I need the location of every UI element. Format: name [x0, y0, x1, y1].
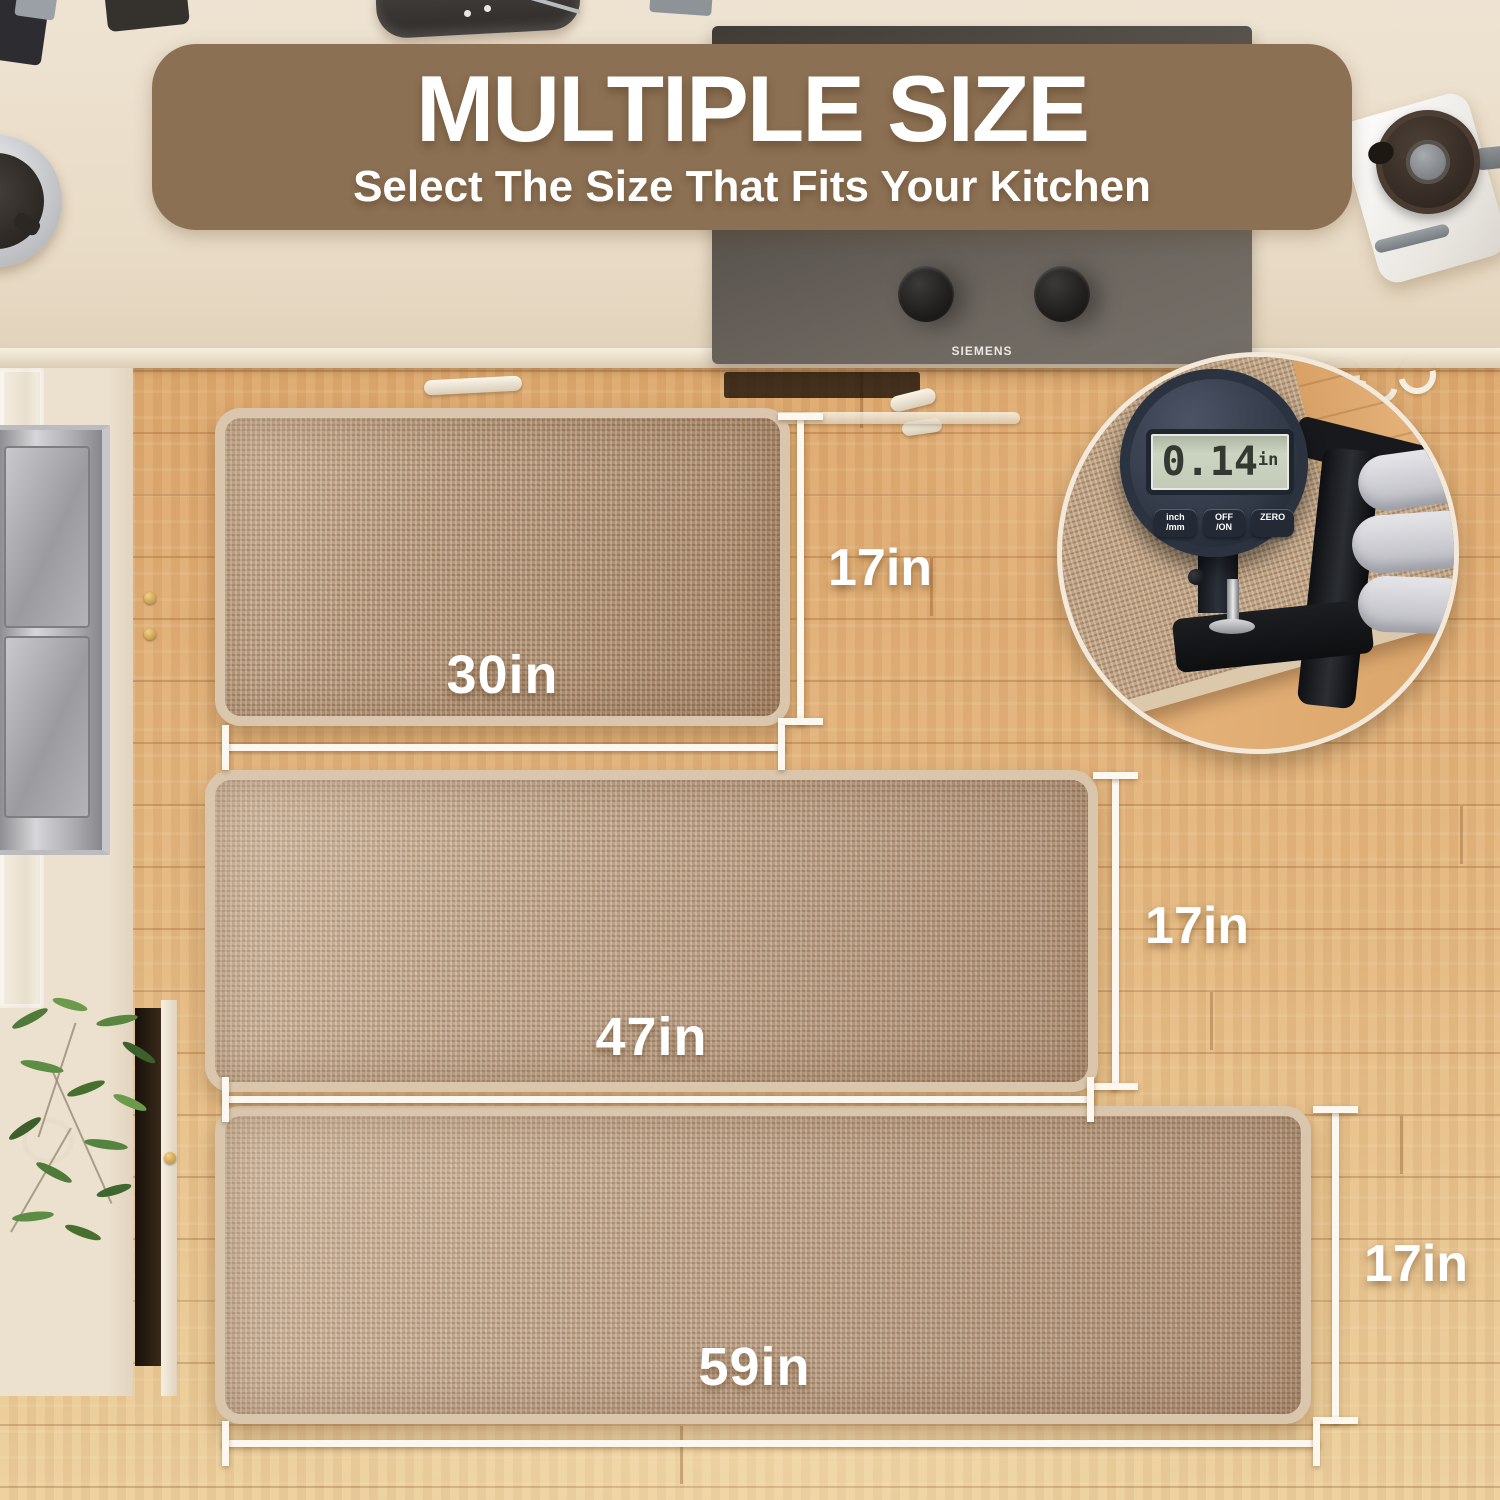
pan-rivet: [484, 5, 491, 12]
cabinet-knob: [144, 628, 156, 640]
gauge-button-zero: ZERO: [1251, 509, 1294, 537]
dimension-line-height-mat2: [1112, 772, 1119, 1090]
cabinet-knob: [164, 1152, 176, 1164]
steel-appliance-door: [4, 636, 90, 818]
height-label-mat3: 17in: [1364, 1234, 1468, 1294]
gauge-button-inch-mm: inch /mm: [1154, 509, 1197, 537]
gloved-finger: [1357, 575, 1459, 635]
mat-59x17: 59in: [215, 1106, 1311, 1424]
dimension-line-width-mat1: [222, 744, 785, 751]
gauge-button-line: /ON: [1205, 523, 1244, 533]
floor-plank-seam: [1400, 1116, 1403, 1174]
toe-kick-opening: [724, 372, 920, 398]
gauge-anvil: [1209, 619, 1255, 634]
steel-appliance-door: [4, 446, 90, 628]
height-label-mat2: 17in: [1145, 896, 1249, 956]
gauge-buttons: inch /mm OFF /ON ZERO: [1154, 509, 1294, 537]
banner-title: MULTIPLE SIZE: [416, 62, 1088, 156]
cooktop-knob: [1034, 266, 1090, 322]
cabinet-knob: [144, 592, 156, 604]
cooktop-knob: [898, 266, 954, 322]
mat-30x17: 30in: [215, 408, 790, 726]
gauge-button-off-on: OFF /ON: [1203, 509, 1246, 537]
mat-47x17: 47in: [205, 770, 1098, 1092]
gauge-screw: [1188, 569, 1204, 585]
gauge-button-line: ZERO: [1253, 513, 1292, 523]
mat-width-label: 47in: [595, 1006, 707, 1068]
floor-plank-seam: [680, 1426, 683, 1484]
gauge-lcd-display: 0.14in: [1146, 429, 1294, 495]
dimension-line-width-mat3: [222, 1440, 1320, 1447]
dimension-line-width-mat2: [222, 1096, 1094, 1103]
island-edge: [161, 1000, 177, 1396]
product-image: SIEMENS 30in 47in 59in 17in 17in: [0, 0, 1500, 1500]
mat-width-label: 59in: [698, 1336, 810, 1398]
dimension-line-height-mat3: [1332, 1106, 1339, 1424]
kettle-lid-knob: [1406, 140, 1450, 184]
floor-plank-seam: [1460, 806, 1463, 864]
pan-rivet: [464, 10, 471, 17]
thickness-gauge-inset: 0.14in inch /mm OFF /ON ZERO: [1057, 352, 1459, 754]
height-label-mat1: 17in: [828, 538, 932, 598]
dimension-line-height-mat1: [797, 413, 804, 725]
gauge-unit: in: [1258, 450, 1278, 470]
steel-appliance: [0, 425, 110, 855]
gauge-button-line: /mm: [1156, 523, 1195, 533]
cooktop-brand-label: SIEMENS: [712, 344, 1252, 358]
gloved-finger: [1350, 509, 1459, 575]
floor-plank-seam: [1210, 992, 1213, 1050]
banner-subtitle: Select The Size That Fits Your Kitchen: [353, 162, 1151, 212]
mat-width-label: 30in: [446, 644, 558, 706]
gauge-reading: 0.14: [1162, 442, 1258, 482]
title-banner: MULTIPLE SIZE Select The Size That Fits …: [152, 44, 1352, 230]
